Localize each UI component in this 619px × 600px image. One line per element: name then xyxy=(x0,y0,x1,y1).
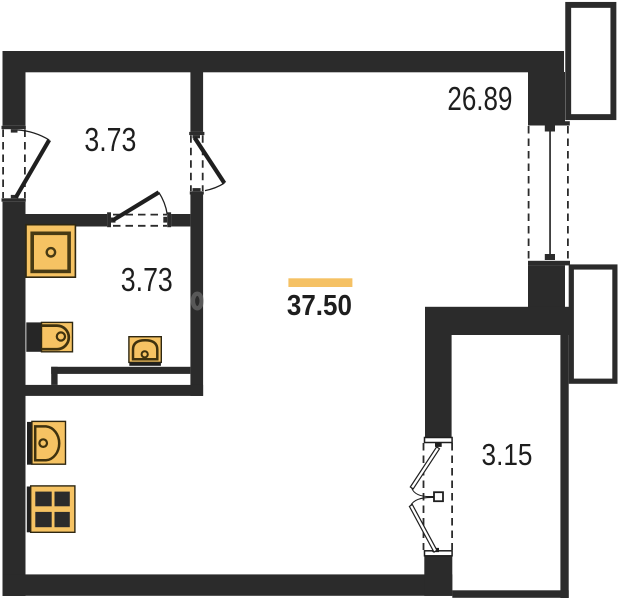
svg-text:26.89: 26.89 xyxy=(447,80,512,117)
svg-text:37.50: 37.50 xyxy=(287,290,352,322)
svg-text:3.73: 3.73 xyxy=(84,121,136,158)
svg-text:3.15: 3.15 xyxy=(482,437,533,472)
svg-text:3.73: 3.73 xyxy=(121,261,173,298)
